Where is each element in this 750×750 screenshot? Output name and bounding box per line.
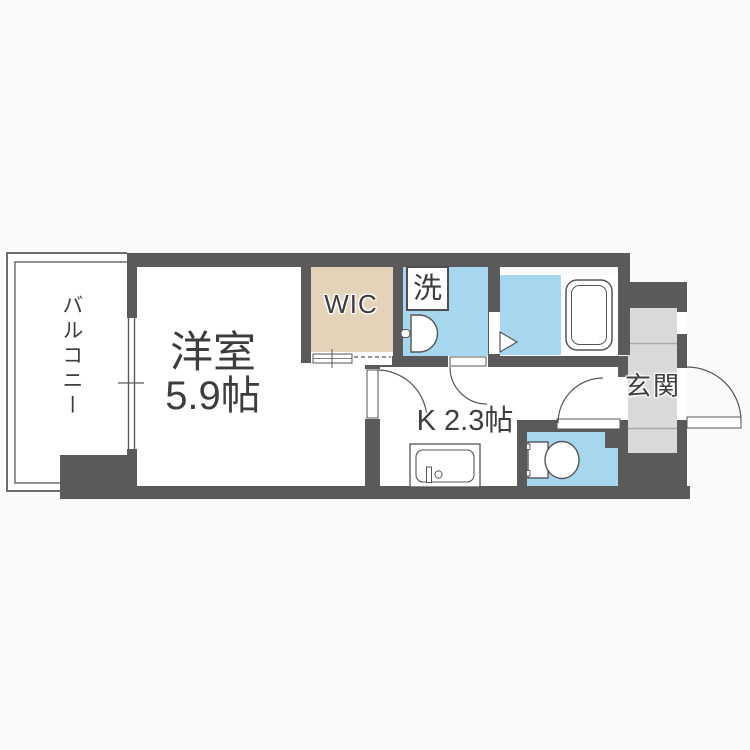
- wall-pillar-bottom-left: [60, 455, 137, 487]
- balcony-label: バルコニー: [60, 294, 82, 419]
- wall-entrance-right-lower: [677, 420, 687, 453]
- western-room-size-label: 5.9帖: [130, 376, 296, 418]
- kitchen-door-leaf: [557, 419, 620, 429]
- kitchen-label: K 2.3帖: [384, 406, 546, 436]
- bathroom-door-opening: [489, 312, 500, 354]
- wall-entrance-left-lower: [618, 432, 628, 453]
- kitchen-faucet: [427, 467, 432, 483]
- front-door-leaf: [687, 417, 741, 428]
- wall-bottom-right-block: [618, 453, 687, 497]
- entrance-jamb-notch: [677, 312, 687, 334]
- wall-top: [127, 253, 630, 267]
- laundry-label: 洗: [406, 274, 449, 304]
- washroom-door-leaf: [450, 357, 486, 366]
- wall-toilet-notch: [605, 432, 620, 448]
- entrance-label: 玄関: [602, 373, 704, 400]
- wall-entrance-top: [630, 282, 687, 308]
- wash-basin-faucet: [401, 330, 410, 338]
- wall-toilet-left: [517, 432, 527, 487]
- room-door-leaf: [367, 370, 378, 418]
- wall-bathroom-right: [618, 253, 630, 355]
- wall-bottom: [60, 486, 690, 499]
- toilet-tank-tab: [527, 471, 531, 477]
- kitchen-faucet-knob: [435, 471, 442, 478]
- bathtub-icon: [566, 280, 612, 350]
- toilet-floor-extension: [605, 448, 620, 487]
- western-room-label: 洋室: [130, 331, 296, 376]
- floor-plan: バルコニー 洋室 5.9帖 WIC 洗 K 2.3帖 玄関: [0, 0, 750, 750]
- wall-kitchen-top-right: [488, 356, 628, 367]
- toilet-tank-tab: [527, 444, 531, 450]
- wall-left-upper: [127, 267, 137, 318]
- toilet-icon: [545, 442, 579, 479]
- wall-room-kitchen-bottom: [365, 419, 380, 486]
- wic-label: WIC: [306, 291, 396, 318]
